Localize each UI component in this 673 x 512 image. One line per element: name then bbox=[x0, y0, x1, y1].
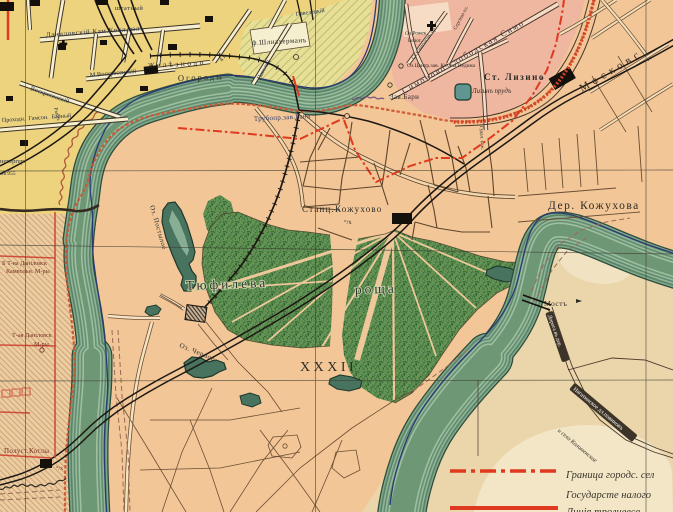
svg-text:Ст. Лизино: Ст. Лизино bbox=[484, 72, 545, 82]
svg-text:°/х: °/х bbox=[344, 219, 352, 226]
svg-text:Государсте налого: Государсте налого bbox=[565, 490, 651, 501]
svg-text:°/х: °/х bbox=[56, 465, 63, 472]
svg-text:XXXII: XXXII bbox=[300, 360, 357, 375]
svg-text:знг955: знг955 bbox=[0, 171, 16, 177]
svg-text:Ол.Рожек: Ол.Рожек bbox=[405, 30, 427, 37]
svg-text:роща: роща bbox=[355, 281, 397, 297]
svg-text:Камвольн. М-ры: Камвольн. М-ры bbox=[6, 268, 51, 275]
svg-text:нетергер.: нетергер. bbox=[0, 158, 26, 165]
svg-text:Граница городс. сел: Граница городс. сел bbox=[565, 470, 655, 481]
svg-text:Дер. Кожухова: Дер. Кожухова bbox=[548, 200, 640, 212]
svg-text:Болот.: Болот. bbox=[408, 38, 422, 44]
svg-text:Полуст.Котлы: Полуст.Котлы bbox=[4, 447, 49, 455]
svg-text:Станц.Кожухово: Станц.Кожухово bbox=[302, 204, 383, 214]
svg-text:Лизинъ прудъ: Лизинъ прудъ bbox=[471, 88, 512, 95]
svg-text:Тюфилева: Тюфилева bbox=[186, 275, 269, 293]
svg-text:Мостъ: Мостъ bbox=[544, 299, 567, 308]
svg-text:Б Т-ва Данiловск: Б Т-ва Данiловск bbox=[2, 260, 48, 267]
svg-text:Огороды: Огороды bbox=[178, 71, 224, 83]
svg-text:штатный: штатный bbox=[115, 5, 143, 12]
svg-text:М-ры: М-ры bbox=[34, 341, 50, 348]
svg-text:Т-ая Данiловск: Т-ая Данiловск bbox=[12, 332, 53, 339]
svg-text:Линія тролнеесв: Линія тролнеесв bbox=[565, 507, 640, 512]
